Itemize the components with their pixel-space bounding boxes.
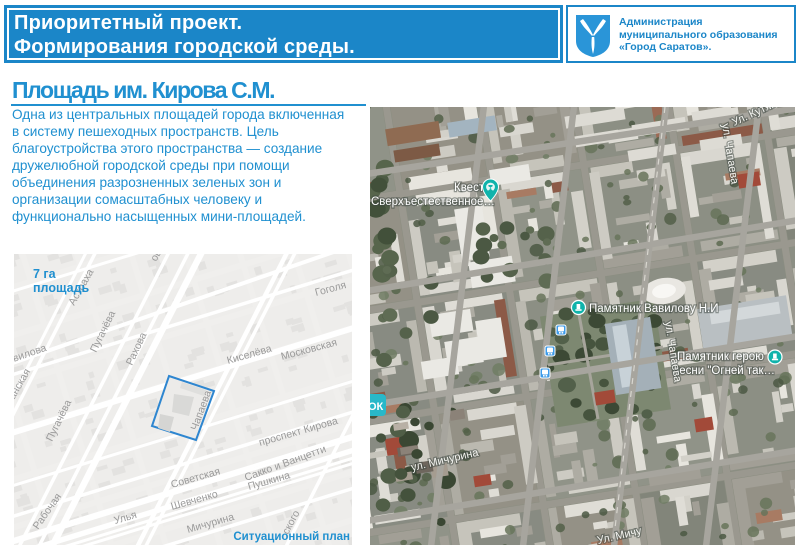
svg-text:Памятник Вавилову Н.И: Памятник Вавилову Н.И: [589, 303, 718, 315]
svg-text:Квест: Квест: [454, 182, 485, 194]
svg-text:песни "Огней так…: песни "Огней так…: [673, 365, 775, 377]
svg-text:ОК: ОК: [370, 401, 384, 413]
svg-text:площадь: площадь: [33, 281, 90, 295]
svg-text:Сверхъестественное…: Сверхъестественное…: [371, 196, 495, 208]
svg-text:7 га: 7 га: [33, 267, 57, 281]
svg-text:Ситуационный план: Ситуационный план: [233, 531, 350, 543]
svg-text:Памятник герою: Памятник герою: [677, 351, 764, 363]
